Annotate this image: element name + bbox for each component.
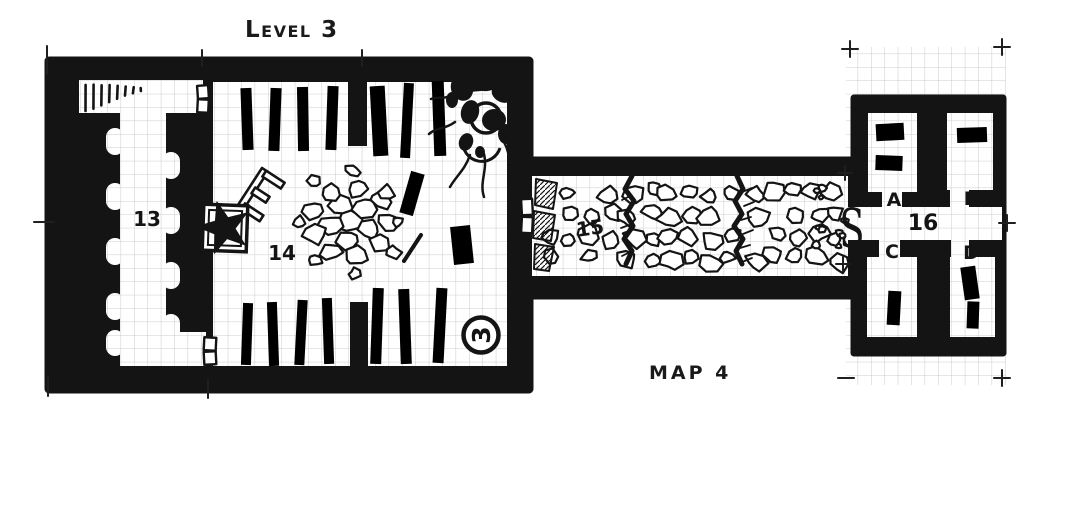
stair-step <box>101 85 103 105</box>
stair-step <box>109 85 111 102</box>
door-icon <box>521 217 533 234</box>
pew-bench <box>268 88 281 151</box>
pebble <box>812 241 820 249</box>
cell-b-floor <box>947 113 993 190</box>
pebble <box>819 185 827 192</box>
stone <box>763 183 785 201</box>
dungeon-map: 3 S 13 14 15 16 A B C D Level 3 Map 4 <box>0 0 1082 527</box>
door-icon <box>204 351 217 365</box>
cell-a-label: A <box>887 189 902 211</box>
alcove-niche <box>106 293 124 320</box>
cell-c-label: C <box>885 241 899 263</box>
pew-bench <box>297 87 309 151</box>
stair-step <box>125 87 126 96</box>
secret-door-marker: S <box>839 197 864 260</box>
alcove-niche <box>106 183 124 210</box>
map-connector-badge: 3 <box>464 318 499 353</box>
alcove-niche <box>162 262 180 289</box>
door-icon <box>197 99 209 113</box>
root-mass <box>498 124 514 144</box>
room-16-label: 16 <box>908 211 939 236</box>
stone <box>787 208 803 223</box>
pebble <box>819 226 827 232</box>
stone <box>309 255 322 265</box>
wall-stub-north <box>348 80 367 146</box>
pebble <box>819 195 824 199</box>
alcove-niche <box>162 207 180 234</box>
level-title: Level 3 <box>245 17 339 43</box>
wall-stub-south <box>350 302 368 368</box>
altar-star-icon <box>196 201 248 254</box>
door-icon <box>521 199 533 216</box>
stone <box>770 228 786 241</box>
stair-step <box>133 87 134 93</box>
crate <box>887 291 902 326</box>
alcove-niche <box>162 152 180 179</box>
room-14-label: 14 <box>268 241 296 265</box>
stone <box>784 183 801 196</box>
pew-bench <box>325 86 338 150</box>
stone <box>681 186 698 198</box>
pew-bench <box>240 88 253 150</box>
cell-d-label: D <box>963 242 979 264</box>
stair-step <box>93 85 95 109</box>
room-13-label: 13 <box>133 207 161 231</box>
cell-b-label: B <box>964 188 978 210</box>
stair-step <box>85 85 87 111</box>
stair-step <box>117 86 118 99</box>
room-13-south-passage <box>120 332 206 366</box>
alcove-niche <box>106 128 124 155</box>
room-15-label: 15 <box>575 214 606 242</box>
door-icon <box>204 337 217 351</box>
stone <box>561 234 575 246</box>
dungeon-map-page: 3 S 13 14 15 16 A B C D Level 3 Map 4 <box>0 0 1082 527</box>
crate <box>875 155 903 171</box>
map-title: Map 4 <box>649 362 731 384</box>
crate <box>967 301 980 328</box>
crate <box>876 123 905 141</box>
map-connector-number: 3 <box>467 326 496 343</box>
alcove-niche <box>106 238 124 265</box>
crate <box>957 127 988 143</box>
door-icon <box>197 85 209 99</box>
pew-bench <box>450 225 474 265</box>
